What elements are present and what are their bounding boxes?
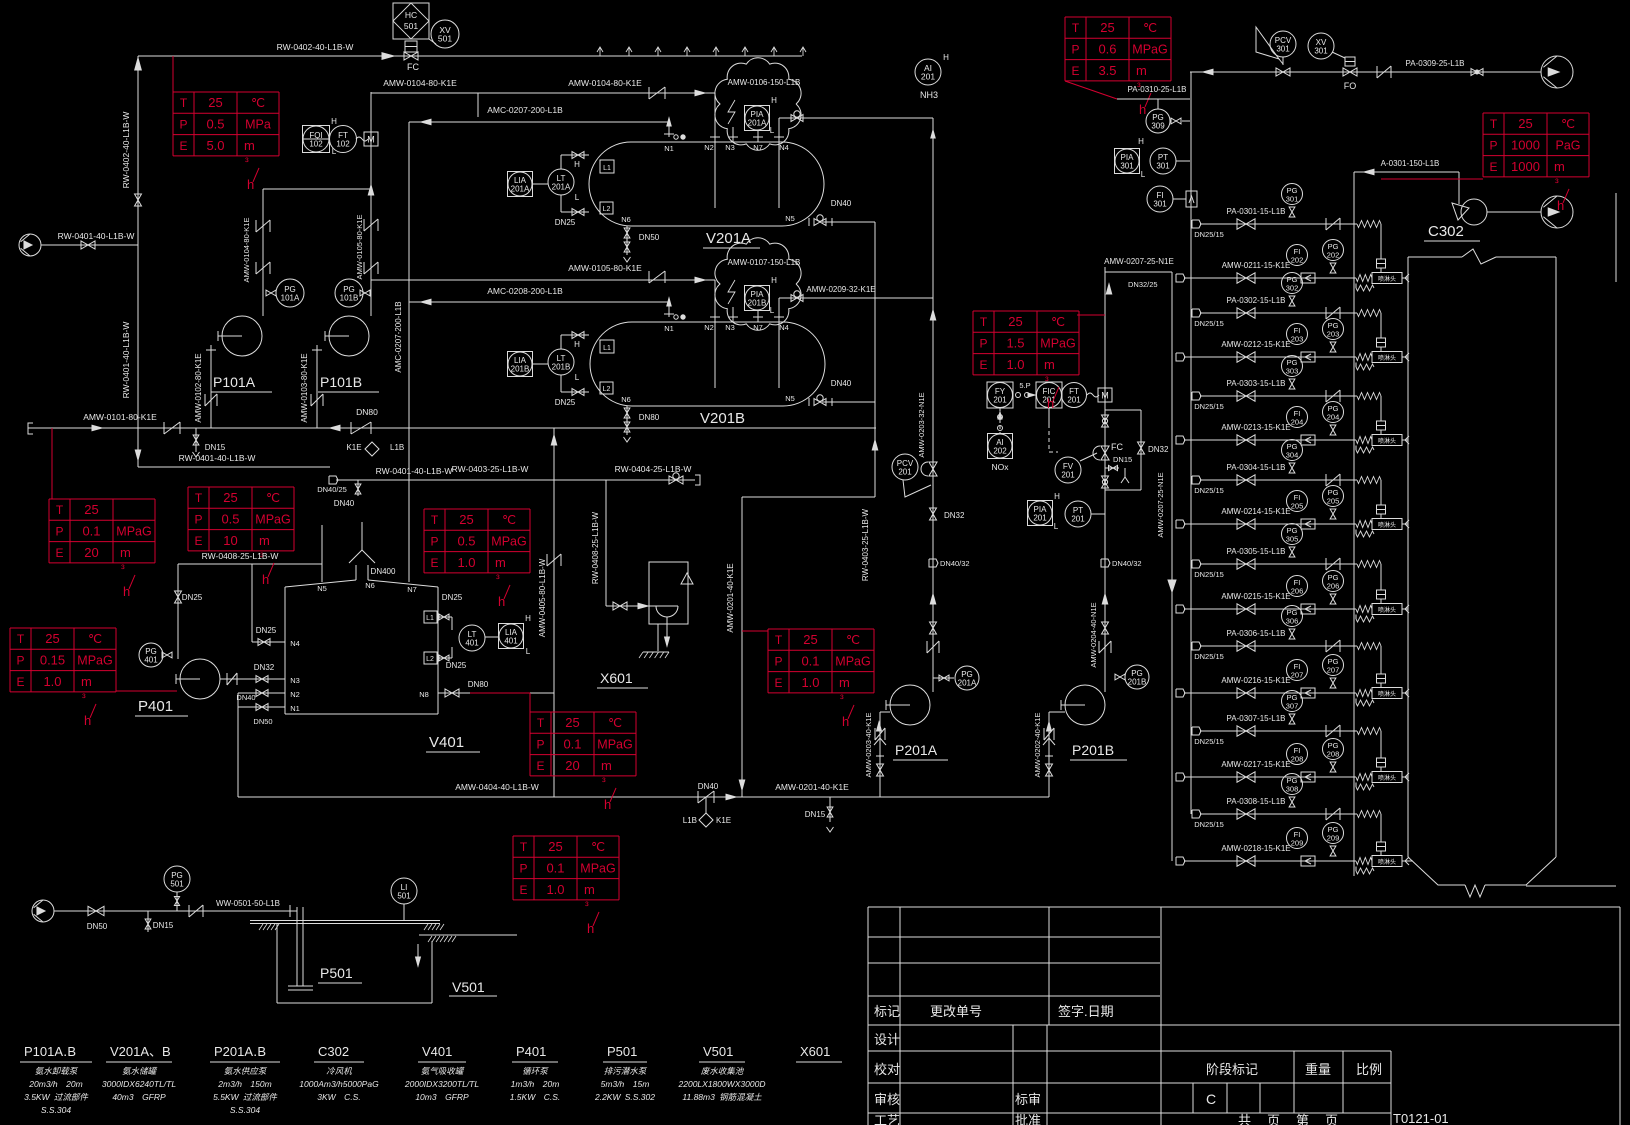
svg-text:废水收集池: 废水收集池 [701, 1066, 745, 1076]
svg-text:m: m [495, 555, 506, 570]
svg-text:PG: PG [1287, 442, 1298, 451]
svg-text:m: m [584, 882, 595, 897]
svg-text:L1B: L1B [390, 443, 404, 452]
svg-text:LT: LT [468, 630, 477, 639]
svg-text:h: h [247, 177, 254, 192]
svg-text:第: 第 [1296, 1113, 1309, 1125]
svg-text:N6: N6 [621, 215, 631, 224]
svg-text:T0121-01: T0121-01 [1393, 1111, 1449, 1125]
svg-text:501: 501 [397, 892, 411, 901]
svg-text:T: T [56, 503, 64, 517]
svg-text:DN40/32: DN40/32 [940, 559, 970, 568]
svg-text:0.6: 0.6 [1098, 41, 1116, 56]
svg-text:DN32: DN32 [1148, 445, 1169, 454]
svg-text:L: L [770, 126, 775, 135]
svg-text:FI: FI [1156, 191, 1163, 200]
svg-text:AMW-0213-15-K1E: AMW-0213-15-K1E [1221, 423, 1290, 432]
svg-text:HC: HC [405, 10, 417, 20]
svg-text:PA-0309-25-L1B: PA-0309-25-L1B [1406, 59, 1465, 68]
svg-text:201: 201 [993, 396, 1007, 405]
svg-text:h: h [498, 594, 505, 609]
svg-text:PG: PG [1287, 358, 1298, 367]
svg-text:1.5: 1.5 [1006, 335, 1024, 350]
svg-text:P: P [979, 336, 987, 350]
svg-text:PG: PG [1328, 573, 1339, 582]
svg-text:DN25: DN25 [555, 398, 576, 407]
svg-text:S.S.304: S.S.304 [230, 1105, 261, 1115]
svg-text:C302: C302 [1428, 223, 1464, 240]
svg-text:DN25/15: DN25/15 [1194, 486, 1224, 495]
svg-text:AI: AI [996, 438, 1004, 447]
svg-text:501: 501 [170, 880, 184, 889]
svg-text:25: 25 [1100, 20, 1114, 35]
svg-text:L1B: L1B [683, 816, 697, 825]
svg-text:AMW-0211-15-K1E: AMW-0211-15-K1E [1222, 261, 1291, 270]
svg-text:L2: L2 [603, 206, 611, 213]
svg-text:307: 307 [1286, 702, 1299, 711]
svg-text:25: 25 [1518, 116, 1532, 131]
svg-text:AMW-0405-80-L1B-W: AMW-0405-80-L1B-W [538, 558, 547, 637]
svg-text:206: 206 [1327, 582, 1340, 591]
svg-text:DN80: DN80 [468, 680, 489, 689]
svg-text:P501: P501 [607, 1044, 637, 1059]
svg-text:P: P [774, 654, 782, 668]
svg-text:201A: 201A [748, 119, 767, 128]
svg-text:201B: 201B [1128, 678, 1147, 687]
svg-text:RW-0402-40-L1B-W: RW-0402-40-L1B-W [277, 42, 354, 52]
svg-text:V401: V401 [429, 734, 464, 751]
svg-text:循环泵: 循环泵 [522, 1066, 549, 1076]
svg-text:FIC: FIC [1043, 387, 1056, 396]
svg-text:201B: 201B [748, 299, 767, 308]
svg-text:AMW-0207-25-N1E: AMW-0207-25-N1E [1104, 257, 1174, 266]
svg-text:0.15: 0.15 [40, 652, 65, 667]
svg-text:0.5: 0.5 [457, 533, 475, 548]
svg-text:冷风机: 冷风机 [326, 1066, 352, 1076]
svg-text:标审: 标审 [1015, 1092, 1041, 1107]
svg-text:L: L [1054, 522, 1059, 531]
svg-text:E: E [194, 534, 202, 548]
svg-text:T: T [1490, 117, 1498, 131]
svg-text:204: 204 [1291, 418, 1304, 427]
svg-text:P201B: P201B [1072, 742, 1114, 758]
svg-text:喷淋头: 喷淋头 [1378, 774, 1396, 782]
svg-text:P101B: P101B [320, 374, 362, 390]
svg-text:FI: FI [1294, 662, 1301, 671]
svg-text:重量: 重量 [1305, 1062, 1331, 1077]
svg-text:H: H [771, 276, 777, 285]
svg-text:FI: FI [1294, 830, 1301, 839]
svg-text:401: 401 [504, 637, 518, 646]
svg-text:FC: FC [1111, 442, 1123, 452]
svg-text:RW-0401-40-L1B-W: RW-0401-40-L1B-W [376, 466, 453, 476]
svg-text:T: T [520, 840, 528, 854]
svg-text:P401: P401 [516, 1044, 546, 1059]
svg-text:203: 203 [1327, 330, 1340, 339]
svg-text:PA-0310-25-L1B: PA-0310-25-L1B [1128, 85, 1187, 94]
svg-text:3000IDX6240TL/TL: 3000IDX6240TL/TL [102, 1079, 176, 1089]
svg-text:203: 203 [1291, 335, 1304, 344]
svg-text:N6: N6 [621, 395, 631, 404]
svg-text:AMC-0207-200-L1B: AMC-0207-200-L1B [487, 105, 563, 115]
svg-text:DN25: DN25 [446, 661, 467, 670]
svg-text:201: 201 [921, 72, 935, 82]
svg-text:更改单号: 更改单号 [930, 1004, 982, 1019]
svg-text:PA-0305-15-L1B: PA-0305-15-L1B [1227, 547, 1286, 556]
svg-text:P101A: P101A [213, 374, 256, 390]
svg-text:201B: 201B [511, 365, 530, 374]
svg-text:102: 102 [336, 140, 350, 149]
svg-text:2.2KW S.S.302: 2.2KW S.S.302 [594, 1092, 655, 1102]
svg-text:L: L [575, 193, 580, 202]
svg-text:PG: PG [961, 670, 973, 679]
svg-text:DN25/15: DN25/15 [1194, 402, 1224, 411]
svg-text:1.0: 1.0 [801, 675, 819, 690]
svg-text:40m3 GFRP: 40m3 GFRP [112, 1092, 166, 1102]
svg-text:喷淋头: 喷淋头 [1378, 858, 1396, 866]
svg-text:m: m [81, 674, 92, 689]
svg-text:³: ³ [585, 900, 589, 912]
svg-text:AMW-0215-15-K1E: AMW-0215-15-K1E [1221, 592, 1290, 601]
svg-text:P201A: P201A [895, 742, 938, 758]
svg-text:207: 207 [1327, 666, 1340, 675]
svg-text:PG: PG [1131, 669, 1143, 678]
svg-text:LI: LI [401, 883, 408, 892]
svg-text:喷淋头: 喷淋头 [1378, 275, 1396, 283]
svg-text:401: 401 [144, 656, 158, 665]
svg-text:1000Am3/h5000PaG: 1000Am3/h5000PaG [299, 1079, 379, 1089]
svg-text:E: E [536, 759, 544, 773]
svg-text:³: ³ [840, 693, 844, 705]
svg-text:DN32/25: DN32/25 [1128, 280, 1158, 289]
svg-text:FY: FY [995, 387, 1006, 396]
svg-text:PG: PG [145, 647, 157, 656]
svg-text:P501: P501 [320, 965, 353, 981]
svg-text:H: H [525, 614, 531, 623]
svg-text:T: T [1072, 21, 1080, 35]
svg-text:25: 25 [208, 95, 222, 110]
svg-text:FT: FT [1069, 387, 1079, 396]
svg-text:1000: 1000 [1511, 159, 1540, 174]
svg-text:201B: 201B [552, 363, 571, 372]
svg-text:DN25/15: DN25/15 [1194, 319, 1224, 328]
svg-text:RW-0404-25-L1B-W: RW-0404-25-L1B-W [615, 464, 692, 474]
svg-text:N4: N4 [290, 639, 300, 648]
svg-text:℃: ℃ [1143, 21, 1157, 35]
svg-text:E: E [1071, 64, 1079, 78]
svg-text:L: L [575, 373, 580, 382]
svg-text:MPaG: MPaG [597, 737, 632, 751]
svg-text:X601: X601 [800, 1044, 830, 1059]
svg-text:0.1: 0.1 [546, 860, 564, 875]
svg-text:PA-0304-15-L1B: PA-0304-15-L1B [1227, 463, 1286, 472]
svg-text:m: m [244, 138, 255, 153]
svg-text:P: P [16, 653, 24, 667]
svg-text:P101A․B: P101A․B [24, 1044, 76, 1059]
svg-text:AMW-0203-40-K1E: AMW-0203-40-K1E [864, 713, 873, 778]
svg-text:PCV: PCV [897, 459, 914, 468]
svg-text:E: E [179, 139, 187, 153]
svg-text:LIA: LIA [514, 356, 527, 365]
svg-text:H: H [1138, 137, 1144, 146]
svg-text:N3: N3 [725, 143, 735, 152]
svg-text:³: ³ [245, 156, 249, 168]
svg-text:2000IDX3200TL/TL: 2000IDX3200TL/TL [404, 1079, 479, 1089]
svg-text:25: 25 [84, 502, 98, 517]
svg-text:20: 20 [565, 758, 579, 773]
svg-text:5m3/h 15m: 5m3/h 15m [601, 1079, 650, 1089]
svg-text:RW-0401-40-L1B-W: RW-0401-40-L1B-W [179, 453, 256, 463]
svg-text:℃: ℃ [608, 716, 622, 730]
svg-text:FI: FI [1294, 578, 1301, 587]
svg-text:202: 202 [993, 447, 1007, 456]
svg-text:E: E [519, 883, 527, 897]
svg-text:PG: PG [1328, 488, 1339, 497]
svg-text:501: 501 [438, 34, 452, 44]
svg-text:1.0: 1.0 [1006, 357, 1024, 372]
svg-text:PG: PG [1328, 404, 1339, 413]
svg-text:201: 201 [1071, 515, 1085, 524]
svg-text:PT: PT [1158, 153, 1168, 162]
svg-text:标记: 标记 [874, 1004, 900, 1019]
svg-text:L: L [770, 306, 775, 315]
svg-text:T: T [537, 716, 545, 730]
svg-text:3.5KW 过流部件: 3.5KW 过流部件 [24, 1092, 89, 1102]
svg-text:201A: 201A [552, 183, 571, 192]
svg-text:301: 301 [1276, 45, 1290, 54]
svg-text:³: ³ [602, 776, 606, 788]
svg-text:PG: PG [1152, 113, 1164, 122]
svg-text:E: E [430, 556, 438, 570]
svg-text:AMW-0202-40-K1E: AMW-0202-40-K1E [1033, 713, 1042, 778]
svg-text:FI: FI [1294, 493, 1301, 502]
svg-text:PCV: PCV [1275, 36, 1292, 45]
svg-text:H: H [771, 96, 777, 105]
svg-text:T: T [195, 491, 203, 505]
svg-text:0.1: 0.1 [801, 653, 819, 668]
svg-text:207: 207 [1291, 671, 1304, 680]
svg-text:喷淋头: 喷淋头 [1378, 521, 1396, 529]
svg-text:h: h [84, 713, 91, 728]
svg-text:DN50: DN50 [87, 922, 108, 931]
svg-text:比例: 比例 [1356, 1062, 1382, 1077]
svg-text:LT: LT [557, 354, 566, 363]
svg-text:FI: FI [1294, 746, 1301, 755]
svg-text:202: 202 [1327, 251, 1340, 260]
svg-text:H: H [574, 340, 580, 349]
svg-text:201: 201 [1061, 471, 1075, 480]
svg-text:P201A․B: P201A․B [214, 1044, 266, 1059]
svg-text:301: 301 [1156, 162, 1170, 171]
svg-text:m: m [601, 758, 612, 773]
svg-text:K1E: K1E [716, 816, 731, 825]
svg-text:PG: PG [284, 285, 296, 294]
svg-text:N5: N5 [785, 394, 795, 403]
svg-text:LIA: LIA [505, 628, 518, 637]
svg-text:h: h [1139, 102, 1146, 117]
svg-text:DN25: DN25 [555, 218, 576, 227]
svg-text:PG: PG [1328, 825, 1339, 834]
svg-text:L1: L1 [603, 345, 611, 352]
svg-text:301: 301 [1314, 47, 1328, 56]
svg-text:氨水卸载泵: 氨水卸载泵 [35, 1066, 79, 1076]
svg-text:2200LX1800WX3000D: 2200LX1800WX3000D [678, 1079, 766, 1089]
svg-text:E: E [774, 676, 782, 690]
svg-text:11.88m3 钢筋混凝土: 11.88m3 钢筋混凝土 [682, 1092, 762, 1102]
svg-text:1.0: 1.0 [457, 555, 475, 570]
svg-text:h: h [1557, 198, 1564, 213]
svg-text:101B: 101B [340, 294, 359, 303]
svg-text:h: h [262, 572, 269, 587]
svg-text:PIA: PIA [751, 110, 765, 119]
svg-text:201: 201 [898, 468, 912, 477]
svg-text:2m3/h 150m: 2m3/h 150m [217, 1079, 271, 1089]
svg-text:301: 301 [1153, 200, 1167, 209]
svg-text:阶段标记: 阶段标记 [1206, 1062, 1258, 1077]
svg-text:3KW C.S.: 3KW C.S. [317, 1092, 360, 1102]
svg-text:AMW-0212-15-K1E: AMW-0212-15-K1E [1221, 340, 1290, 349]
svg-text:DN25: DN25 [256, 626, 277, 635]
svg-text:N5: N5 [785, 214, 795, 223]
svg-text:批准: 批准 [1015, 1113, 1041, 1125]
svg-text:5.P: 5.P [1019, 381, 1030, 390]
svg-text:M: M [367, 135, 375, 145]
svg-text:V401: V401 [422, 1044, 452, 1059]
svg-text:N2: N2 [704, 323, 714, 332]
svg-text:DN400: DN400 [371, 567, 396, 576]
svg-text:DN15: DN15 [153, 921, 174, 930]
svg-text:RW-0401-40-L1B-W: RW-0401-40-L1B-W [121, 322, 131, 399]
svg-text:P: P [430, 534, 438, 548]
svg-text:签字.日期: 签字.日期 [1058, 1004, 1114, 1019]
svg-text:排污潜水泵: 排污潜水泵 [604, 1066, 648, 1076]
svg-text:10m3 GFRP: 10m3 GFRP [415, 1092, 469, 1102]
svg-text:h: h [604, 797, 611, 812]
svg-text:DN40/32: DN40/32 [1112, 559, 1142, 568]
svg-text:MPaG: MPaG [77, 653, 112, 667]
svg-text:L1: L1 [603, 165, 611, 172]
svg-text:P: P [55, 524, 63, 538]
svg-text:25: 25 [548, 839, 562, 854]
svg-text:PG: PG [1287, 275, 1298, 284]
svg-text:DN80: DN80 [356, 407, 378, 417]
svg-text:20: 20 [84, 545, 98, 560]
svg-text:PA-0303-15-L1B: PA-0303-15-L1B [1227, 379, 1286, 388]
svg-text:E: E [55, 546, 63, 560]
svg-text:L: L [332, 147, 337, 156]
svg-text:25: 25 [45, 631, 59, 646]
svg-text:LT: LT [557, 174, 566, 183]
svg-text:FI: FI [1294, 326, 1301, 335]
svg-text:N3: N3 [725, 323, 735, 332]
svg-text:H: H [943, 53, 949, 62]
svg-text:PaG: PaG [1555, 138, 1580, 152]
svg-text:AMW-0217-15-K1E: AMW-0217-15-K1E [1221, 760, 1290, 769]
svg-text:m: m [1044, 357, 1055, 372]
svg-text:T: T [17, 632, 25, 646]
svg-text:FQI: FQI [309, 131, 322, 140]
svg-text:PG: PG [1328, 242, 1339, 251]
svg-text:AMW-0102-80-K1E: AMW-0102-80-K1E [194, 353, 203, 422]
svg-text:309: 309 [1151, 122, 1165, 131]
svg-text:AMW-0106-150-L1B: AMW-0106-150-L1B [728, 78, 801, 87]
svg-text:P: P [179, 117, 187, 131]
svg-text:PIA: PIA [1034, 505, 1048, 514]
svg-text:AMW-0214-15-K1E: AMW-0214-15-K1E [1221, 507, 1290, 516]
svg-text:AMW-0218-15-K1E: AMW-0218-15-K1E [1221, 844, 1290, 853]
svg-text:AMW-0404-40-L1B-W: AMW-0404-40-L1B-W [455, 782, 538, 792]
svg-text:AMW-0101-80-K1E: AMW-0101-80-K1E [83, 412, 157, 422]
svg-text:208: 208 [1291, 755, 1304, 764]
svg-text:AMW-0216-15-K1E: AMW-0216-15-K1E [1221, 676, 1290, 685]
svg-text:氨气吸收罐: 氨气吸收罐 [421, 1066, 465, 1076]
svg-text:L1: L1 [426, 615, 434, 622]
svg-text:N5: N5 [317, 584, 327, 593]
svg-text:L2: L2 [603, 386, 611, 393]
svg-text:L2: L2 [426, 656, 434, 663]
svg-text:L: L [1141, 170, 1146, 179]
svg-text:³: ³ [82, 692, 86, 704]
svg-text:喷淋头: 喷淋头 [1378, 690, 1396, 698]
svg-text:页: 页 [1325, 1113, 1338, 1125]
svg-text:PA-0307-15-L1B: PA-0307-15-L1B [1227, 714, 1286, 723]
svg-text:℃: ℃ [1561, 117, 1575, 131]
svg-text:XV: XV [1316, 38, 1327, 47]
svg-text:MPaG: MPaG [491, 534, 526, 548]
svg-text:℃: ℃ [251, 96, 265, 110]
svg-text:P: P [536, 737, 544, 751]
svg-text:T: T [775, 633, 783, 647]
svg-text:501: 501 [404, 21, 418, 31]
svg-text:PG: PG [1328, 321, 1339, 330]
svg-text:201: 201 [1033, 514, 1047, 523]
svg-text:P401: P401 [138, 698, 173, 715]
svg-text:DN80: DN80 [639, 413, 660, 422]
svg-text:h: h [1047, 396, 1054, 411]
svg-text:FI: FI [1294, 247, 1301, 256]
svg-text:1.0: 1.0 [546, 882, 564, 897]
svg-text:PG: PG [1287, 693, 1298, 702]
svg-text:PG: PG [343, 285, 355, 294]
svg-text:FI: FI [1294, 409, 1301, 418]
svg-text:DN32: DN32 [254, 663, 275, 672]
svg-text:RW-0403-25-L1B-W: RW-0403-25-L1B-W [452, 464, 529, 474]
svg-text:208: 208 [1327, 750, 1340, 759]
svg-text:RW-0401-40-L1B-W: RW-0401-40-L1B-W [58, 231, 135, 241]
svg-text:0.1: 0.1 [82, 523, 100, 538]
svg-text:N2: N2 [704, 143, 714, 152]
svg-text:RW-0402-40-L1B-W: RW-0402-40-L1B-W [121, 112, 131, 189]
svg-text:m: m [1554, 159, 1565, 174]
svg-text:N8: N8 [419, 690, 429, 699]
svg-text:AMW-0107-150-L1B: AMW-0107-150-L1B [728, 258, 801, 267]
svg-text:A-0301-150-L1B: A-0301-150-L1B [1381, 159, 1440, 168]
svg-text:RW-0403-25-L1B-W: RW-0403-25-L1B-W [861, 508, 870, 581]
svg-text:DN40: DN40 [831, 199, 852, 208]
svg-text:L: L [526, 647, 531, 656]
svg-text:5.5KW 过流部件: 5.5KW 过流部件 [213, 1092, 278, 1102]
svg-text:DN40: DN40 [698, 782, 719, 791]
svg-text:DN15: DN15 [805, 810, 826, 819]
svg-text:PA-0308-15-L1B: PA-0308-15-L1B [1227, 797, 1286, 806]
svg-text:301: 301 [1286, 195, 1299, 204]
svg-text:1000: 1000 [1511, 137, 1540, 152]
svg-text:DN25/15: DN25/15 [1194, 737, 1224, 746]
svg-text:205: 205 [1327, 497, 1340, 506]
svg-text:C: C [1206, 1091, 1216, 1107]
svg-text:MPa: MPa [245, 117, 271, 131]
svg-text:M: M [1101, 391, 1109, 401]
